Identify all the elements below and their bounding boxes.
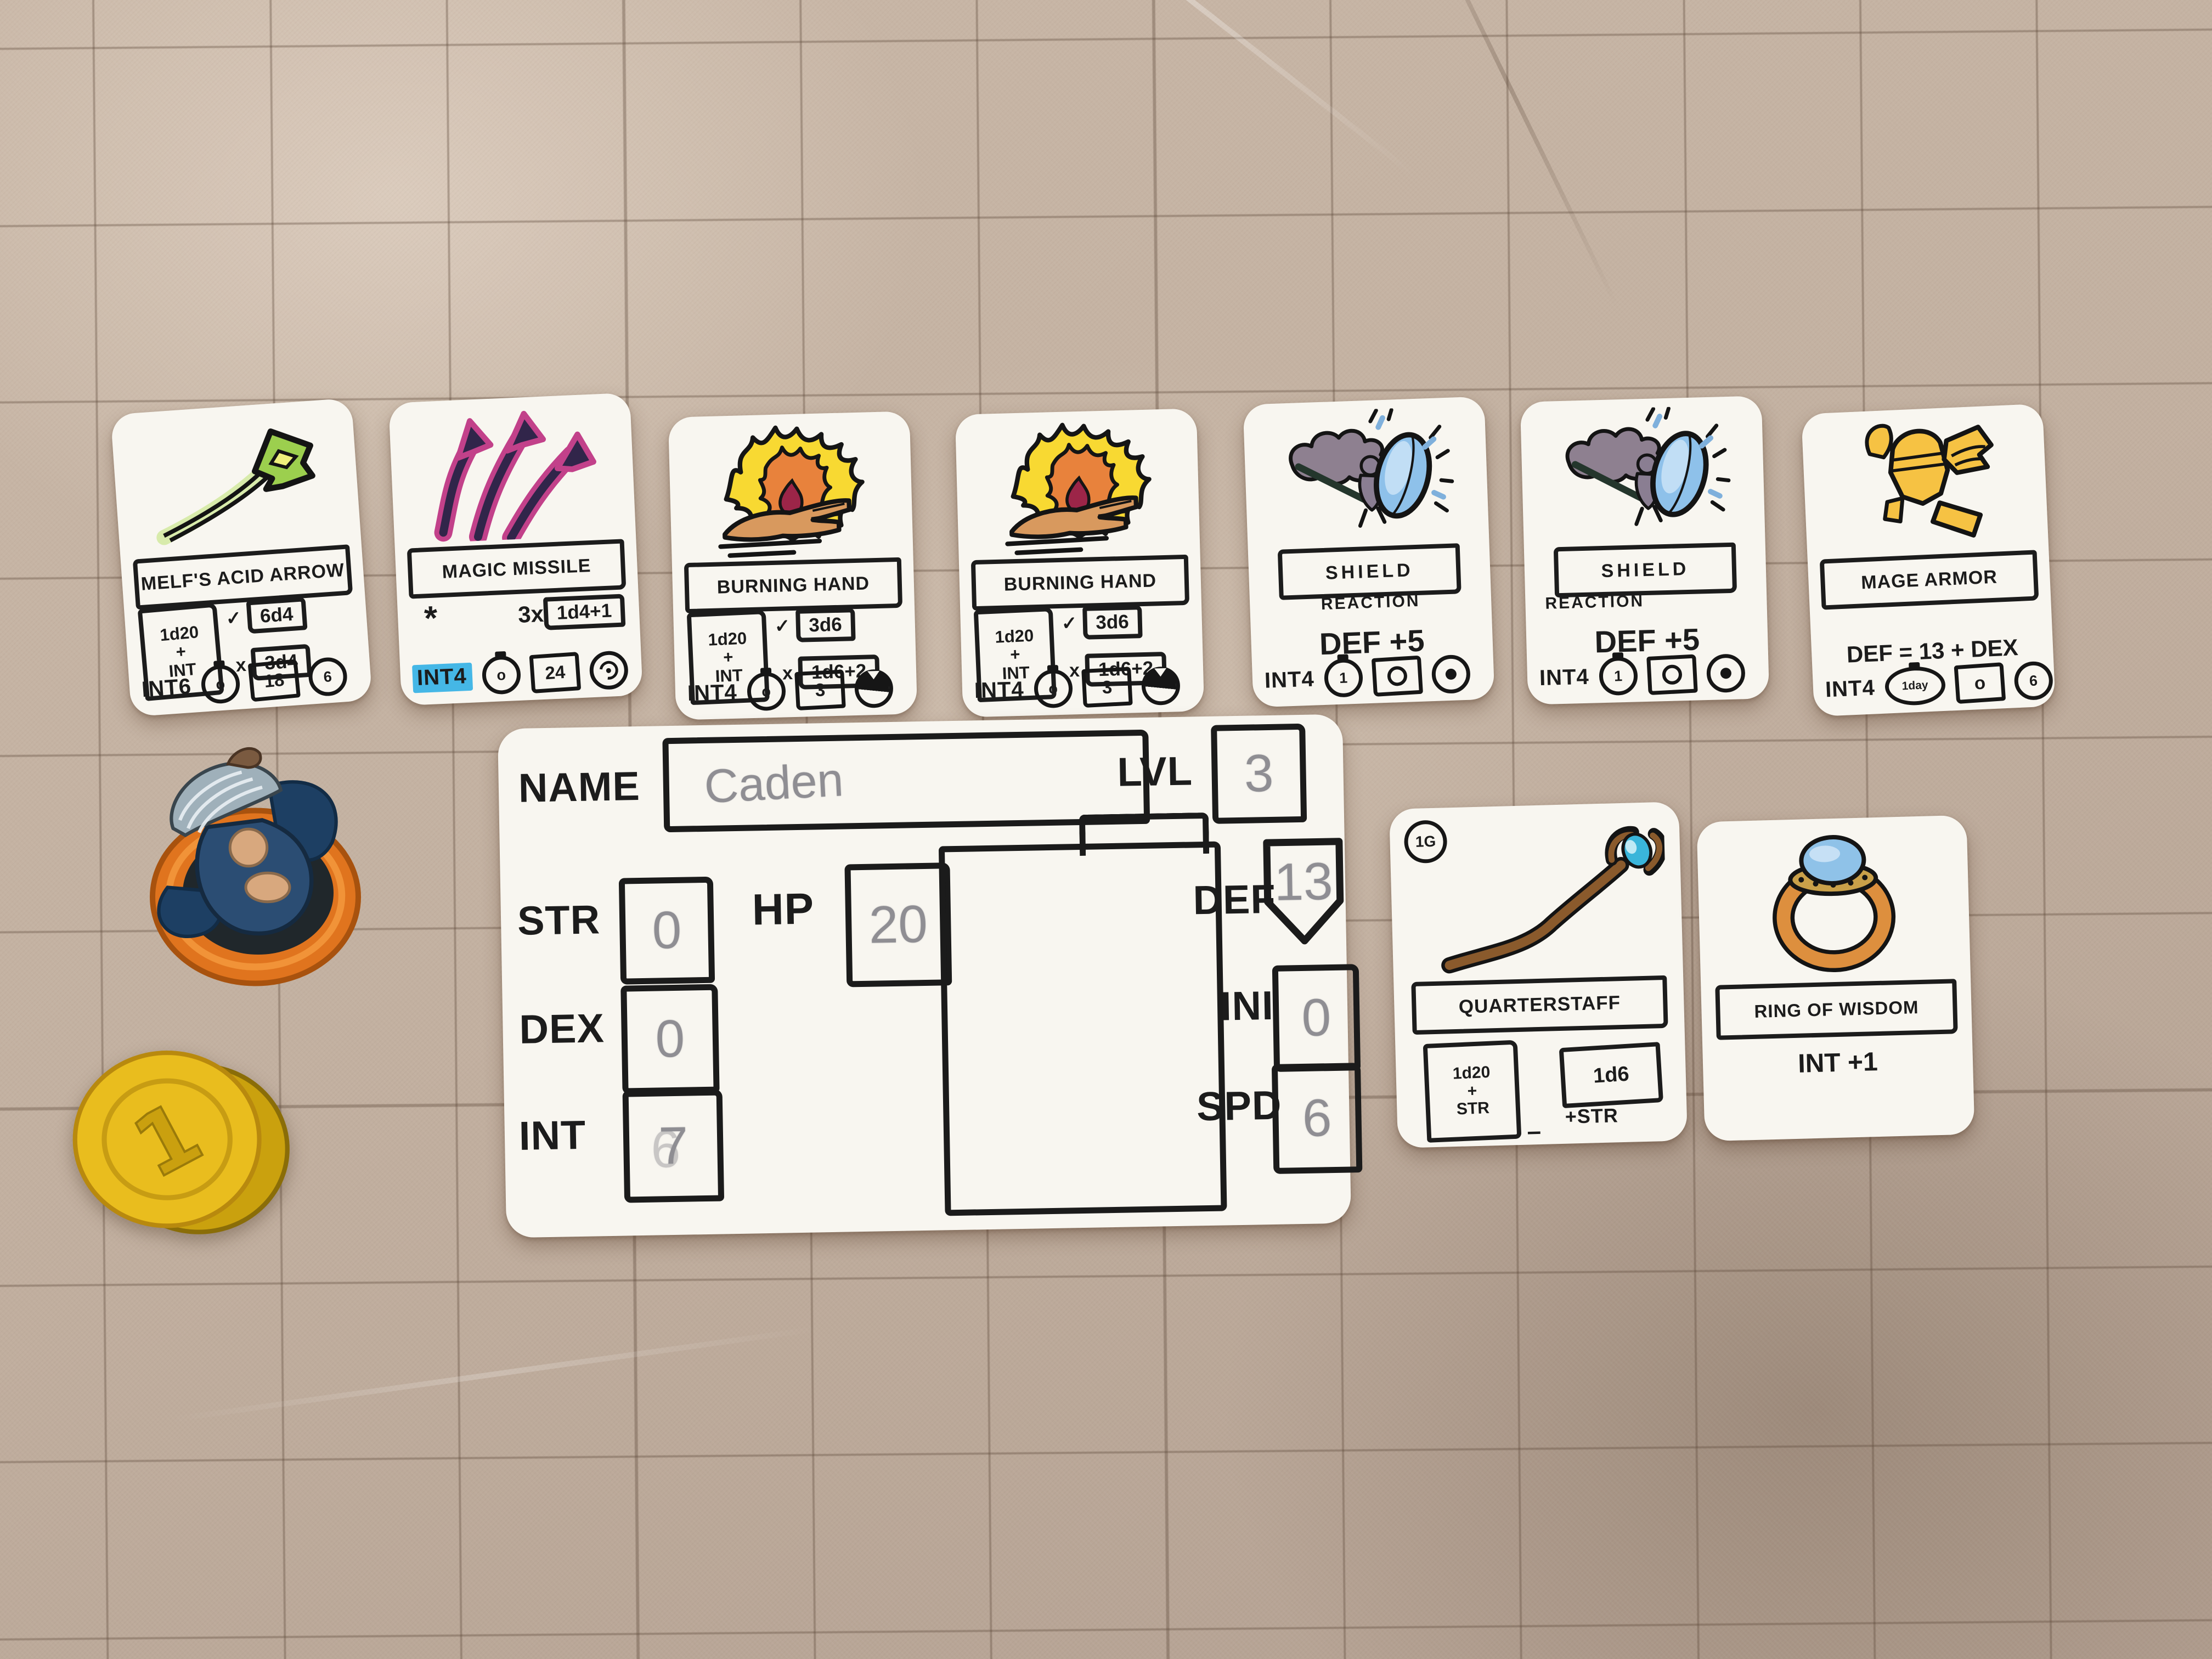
lvl-value: 3 (1244, 743, 1274, 804)
shield-block-icon (1530, 405, 1755, 544)
hp-value: 20 (868, 894, 928, 956)
str-value: 0 (652, 900, 682, 961)
mage-armor-icon (1812, 413, 2039, 556)
hit-damage: 3d6 (1082, 605, 1143, 640)
attack-die: 1d20 (708, 629, 747, 649)
footer-dash: – (1527, 1116, 1542, 1146)
name-field: Caden (662, 730, 1150, 832)
spell-card-shield: SHIELD REACTION DEF +5 INT4 1 (1243, 396, 1495, 707)
stopwatch-icon: o (481, 655, 521, 695)
range-box-icon: 18 (247, 659, 300, 702)
card-footer: INT4 1 (1539, 655, 1762, 696)
spell-card-shield-2: SHIELD REACTION DEF +5 INT4 1 (1520, 396, 1769, 704)
one-day-oval-icon: 1day (1884, 665, 1946, 707)
self-range-box-icon (1646, 654, 1698, 695)
gold-coin: 1 (57, 1034, 293, 1259)
plus: + (1010, 645, 1021, 664)
shield-block-icon (1253, 405, 1479, 547)
spell-card-burning-hand-2: BURNING HAND 1d20 + INT ✓ 3d6 x 1d6+2 IN… (955, 408, 1204, 717)
card-footer: INT4 o 3 (687, 670, 910, 712)
card-title: SHIELD (1554, 543, 1737, 598)
stopwatch-icon: o (200, 664, 241, 705)
str-field: 0 (619, 877, 715, 985)
notes-box-tab (1079, 812, 1209, 856)
def-field: 13 (1261, 836, 1346, 947)
self-circle (1662, 664, 1683, 685)
attack-stat: STR (1456, 1099, 1489, 1119)
tabletop-photo: MELF'S ACID ARROW 1d20 + INT ✓ 6d4 x 3d4… (0, 0, 2212, 1659)
spell-card-mage-armor: MAGE ARMOR DEF = 13 + DEX INT4 1day o 6 (1801, 404, 2056, 717)
magic-missile-icon (399, 402, 626, 545)
plus: + (175, 642, 187, 662)
requirement: INT6 (141, 674, 193, 702)
attack-die: 1d20 (159, 623, 199, 645)
name-value: Caden (703, 753, 844, 814)
int-label: INT (518, 1111, 586, 1159)
requirement: INT4 (1825, 675, 1876, 702)
hit-damage: 3d6 (795, 608, 856, 642)
stopwatch-icon: 1 (1323, 658, 1363, 698)
name-label: NAME (518, 763, 640, 811)
effect-text: INT +1 (1702, 1045, 1973, 1082)
self-range-box-icon (1372, 656, 1423, 697)
range-box-icon: 3 (1081, 667, 1133, 708)
stopwatch-icon: o (1034, 669, 1073, 708)
str-label: STR (517, 896, 600, 944)
range-box-icon: 24 (529, 652, 581, 693)
ini-field: 0 (1272, 964, 1361, 1072)
card-title: MAGIC MISSILE (407, 539, 627, 599)
hp-field: 20 (844, 862, 952, 987)
card-footer: INT4 o 24 (412, 652, 635, 697)
ring-icon (1750, 824, 1918, 979)
hit-damage-row: ✓ 3d6 (1061, 605, 1142, 640)
card-footer: INT4 o 3 (974, 668, 1197, 709)
requirement-highlighted: INT4 (412, 662, 473, 693)
duration-circle-icon: 6 (2013, 661, 2053, 701)
check-mark: ✓ (225, 607, 242, 630)
duration-circle-icon: 6 (307, 656, 348, 697)
character-sheet: NAME Caden LVL 3 STR 0 HP 20 DEF 13 DEX … (498, 714, 1351, 1238)
requirement: INT4 (687, 680, 737, 706)
item-card-quarterstaff: 1G QUARTERSTAFF 1d20 + STR 1d6 +STR – (1389, 802, 1688, 1148)
missile-damage: 1d4+1 (543, 594, 626, 630)
plus: + (723, 648, 734, 667)
hit-damage-row: ✓ 6d4 (225, 597, 308, 635)
stopwatch-icon: o (747, 672, 786, 711)
int-field: 7 (623, 1089, 725, 1203)
dex-label: DEX (519, 1005, 605, 1053)
hp-label: HP (752, 883, 815, 935)
check-mark: ✓ (1061, 612, 1077, 635)
range-box-icon: 3 (794, 669, 846, 710)
item-card-ring-of-wisdom: RING OF WISDOM INT +1 (1696, 815, 1974, 1142)
card-title: MELF'S ACID ARROW (133, 544, 353, 610)
spell-card-magic-missile: MAGIC MISSILE * 3x 1d4+1 INT4 o 24 (388, 393, 643, 706)
auto-hit-row: * 3x 1d4+1 (424, 594, 625, 635)
wizard-miniature (125, 724, 372, 1015)
hit-damage: 6d4 (246, 597, 307, 634)
spell-card-melfs-acid-arrow: MELF'S ACID ARROW 1d20 + INT ✓ 6d4 x 3d4… (110, 398, 372, 716)
spd-label: SPD (1196, 1082, 1282, 1130)
ini-value: 0 (1301, 988, 1331, 1048)
card-footer: INT4 1 (1264, 656, 1487, 698)
int-value: 7 (658, 1116, 689, 1177)
hit-damage-row: ✓ 3d6 (774, 608, 855, 643)
requirement: INT4 (1264, 667, 1314, 693)
damage-bonus: +STR (1565, 1104, 1618, 1128)
missile-count: 3x (517, 601, 544, 628)
attack-die: 1d20 (1452, 1064, 1491, 1083)
card-title: MAGE ARMOR (1820, 550, 2039, 610)
spd-value: 6 (1302, 1088, 1332, 1149)
self-dot-icon (1431, 654, 1470, 694)
auto-hit-star: * (424, 607, 438, 630)
cone-area-icon (854, 669, 894, 708)
card-title: QUARTERSTAFF (1411, 975, 1668, 1035)
self-circle (1387, 665, 1408, 686)
cone-area-icon (1141, 666, 1181, 706)
attack-roll-box: 1d20 + STR (1423, 1040, 1522, 1143)
dex-value: 0 (655, 1009, 685, 1070)
check-mark: ✓ (774, 615, 791, 637)
spd-field: 6 (1272, 1063, 1362, 1174)
timer-dial-icon (589, 650, 629, 690)
card-title: BURNING HAND (684, 557, 902, 613)
notes-box (939, 842, 1227, 1216)
def-value: 13 (1261, 851, 1346, 913)
requirement: INT4 (1539, 664, 1589, 690)
self-range-box-icon: o (1954, 662, 2006, 704)
plus: + (1467, 1082, 1477, 1101)
spell-card-burning-hand: BURNING HAND 1d20 + INT ✓ 3d6 x 1d6+2 IN… (668, 411, 917, 720)
burning-hand-icon (965, 417, 1190, 557)
attack-die: 1d20 (995, 626, 1034, 646)
self-dot-icon (1706, 653, 1746, 693)
damage-box: 1d6 (1559, 1042, 1663, 1108)
lvl-field: 3 (1211, 724, 1307, 824)
lvl-label: LVL (1117, 747, 1193, 795)
dex-field: 0 (620, 984, 719, 1094)
card-footer: INT4 1day o 6 (1825, 663, 2047, 708)
stopwatch-icon: 1 (1599, 656, 1638, 696)
card-title: RING OF WISDOM (1715, 979, 1957, 1040)
card-title: BURNING HAND (971, 555, 1189, 611)
acid-arrow-icon (121, 408, 351, 557)
burning-hand-icon (678, 420, 903, 560)
ini-label: INI (1220, 982, 1274, 1030)
requirement: INT4 (974, 677, 1024, 703)
quarterstaff-icon (1423, 816, 1668, 979)
